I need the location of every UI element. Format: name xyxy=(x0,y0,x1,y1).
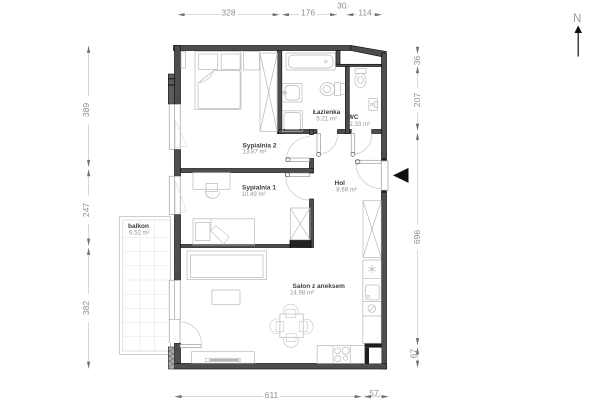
svg-text:328: 328 xyxy=(221,7,235,17)
svg-text:57: 57 xyxy=(369,388,379,398)
svg-text:382: 382 xyxy=(81,301,91,315)
svg-text:247: 247 xyxy=(81,203,91,217)
svg-text:114: 114 xyxy=(358,7,372,17)
svg-text:176: 176 xyxy=(301,7,315,17)
svg-text:67: 67 xyxy=(408,349,418,359)
svg-text:5.21 m²: 5.21 m² xyxy=(316,116,337,123)
svg-text:611: 611 xyxy=(265,390,279,400)
svg-text:2.33 m²: 2.33 m² xyxy=(349,121,370,128)
svg-text:30: 30 xyxy=(337,0,347,10)
svg-text:8.69 m²: 8.69 m² xyxy=(336,187,357,194)
svg-text:N: N xyxy=(573,13,581,25)
svg-text:10.49 m²: 10.49 m² xyxy=(242,191,266,198)
svg-text:207: 207 xyxy=(412,93,422,107)
svg-text:36: 36 xyxy=(412,56,422,66)
svg-text:389: 389 xyxy=(81,103,91,117)
svg-text:6.52 m²: 6.52 m² xyxy=(129,229,150,236)
svg-text:696: 696 xyxy=(412,230,422,244)
svg-text:13.87 m²: 13.87 m² xyxy=(243,148,267,155)
svg-text:WC: WC xyxy=(348,114,359,121)
svg-text:24.98 m²: 24.98 m² xyxy=(290,290,314,297)
